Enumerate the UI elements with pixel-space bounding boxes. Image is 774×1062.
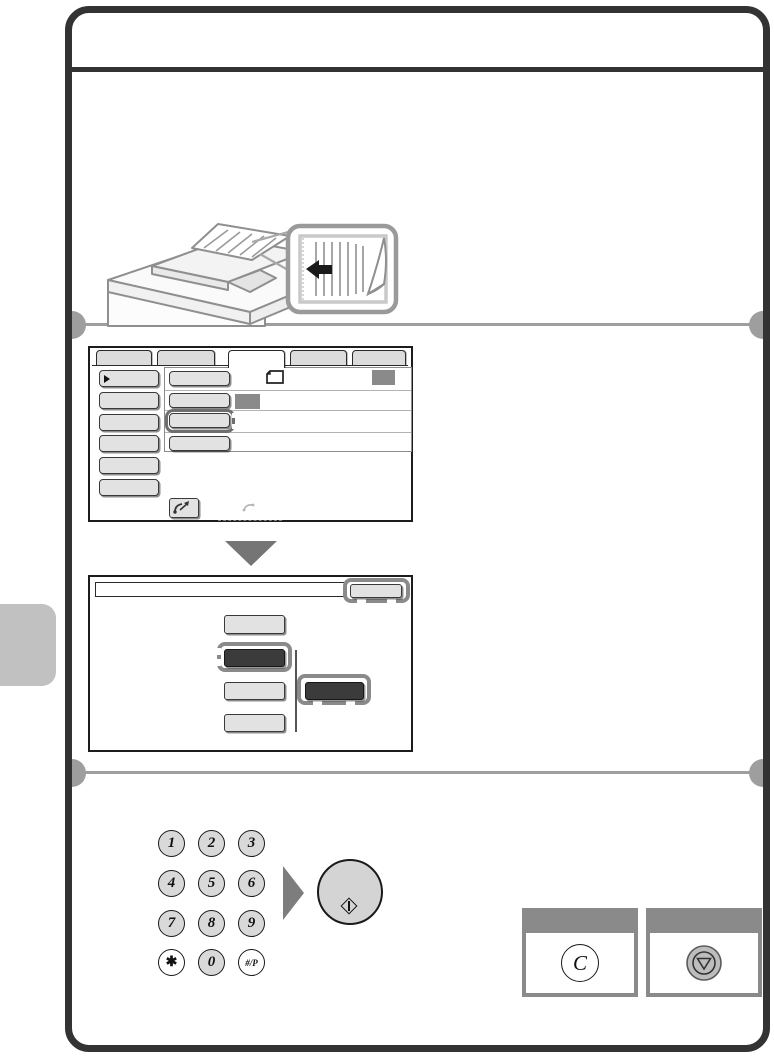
- ghost-text-underline: [218, 520, 282, 521]
- manual-page: 1 2 3 4 5 6 7 8 9 ✱ 0 #/P C: [0, 0, 774, 1062]
- ok-button[interactable]: [350, 584, 402, 598]
- key-label: 4: [168, 875, 176, 892]
- key-label: 6: [248, 875, 256, 892]
- value-badge-2: [235, 394, 260, 409]
- mfp-drawing: [100, 208, 420, 328]
- option-button-4[interactable]: [224, 714, 285, 732]
- setting-button-3-highlighted[interactable]: [169, 413, 230, 428]
- setting-button-2[interactable]: [169, 393, 230, 408]
- page-header: [72, 13, 763, 67]
- key-5[interactable]: 5: [198, 870, 225, 897]
- setting-button-4[interactable]: [169, 436, 230, 451]
- key-2[interactable]: 2: [198, 830, 225, 857]
- callout-box: [288, 226, 396, 312]
- menu-button-6[interactable]: [99, 479, 159, 496]
- key-1[interactable]: 1: [158, 830, 185, 857]
- handset-faint-icon: [242, 502, 256, 513]
- value-badge-1: [372, 370, 395, 385]
- linked-dark-button[interactable]: [305, 682, 364, 700]
- menu-button-1[interactable]: [99, 370, 159, 387]
- key-label: ✱: [166, 954, 178, 971]
- setting-button-1[interactable]: [169, 371, 230, 386]
- tab-2[interactable]: [157, 350, 215, 366]
- dog-ear-page-icon: [264, 369, 287, 385]
- header-divider: [72, 67, 763, 72]
- key-label: 7: [168, 915, 176, 932]
- key-6[interactable]: 6: [238, 870, 265, 897]
- tab-3-selected[interactable]: [228, 350, 285, 368]
- key-label: 2: [208, 835, 216, 852]
- key-3[interactable]: 3: [238, 830, 265, 857]
- touch-screen-1: [88, 346, 413, 522]
- handset-arrow-icon: [171, 499, 197, 515]
- start-button[interactable]: [317, 859, 383, 925]
- stop-button[interactable]: [685, 944, 723, 982]
- start-diamond-bar: [348, 901, 350, 911]
- tab-4[interactable]: [290, 350, 347, 366]
- key-label: 9: [248, 915, 256, 932]
- key-0[interactable]: 0: [198, 949, 225, 976]
- option-button-2-selected[interactable]: [224, 649, 285, 667]
- menu-button-4[interactable]: [99, 435, 159, 452]
- tab-5[interactable]: [352, 350, 406, 366]
- key-4[interactable]: 4: [158, 870, 185, 897]
- key-label: 3: [248, 835, 256, 852]
- tab-1[interactable]: [96, 350, 152, 366]
- clear-button[interactable]: C: [561, 944, 599, 982]
- key-label: #/P: [245, 958, 258, 968]
- finger-highlight-ok: [343, 578, 410, 603]
- clear-glyph: C: [573, 951, 587, 976]
- row-separator: [165, 390, 411, 391]
- key-pound-p[interactable]: #/P: [238, 949, 265, 976]
- clear-panel-header: [526, 912, 634, 933]
- then-press-arrow-icon: [283, 866, 304, 920]
- key-7[interactable]: 7: [158, 910, 185, 937]
- key-label: 5: [208, 875, 216, 892]
- stop-key-panel: [646, 908, 762, 997]
- mfp-illustration: [100, 208, 420, 328]
- next-step-down-arrow-icon: [225, 541, 277, 566]
- menu-button-2[interactable]: [99, 392, 159, 409]
- chapter-side-tab: [0, 604, 56, 686]
- key-9[interactable]: 9: [238, 910, 265, 937]
- clear-key-panel: C: [522, 908, 638, 997]
- key-label: 0: [208, 954, 216, 971]
- pointer-arrow-icon: [104, 375, 110, 383]
- stop-panel-header: [650, 912, 758, 933]
- touch-screen-2: [88, 575, 413, 752]
- option-button-3[interactable]: [224, 682, 285, 700]
- key-8[interactable]: 8: [198, 910, 225, 937]
- speaker-button[interactable]: [169, 498, 199, 518]
- key-label: 1: [168, 835, 176, 852]
- key-label: 8: [208, 915, 216, 932]
- key-star[interactable]: ✱: [158, 949, 185, 976]
- step-divider-2: [74, 771, 761, 774]
- menu-button-3[interactable]: [99, 414, 159, 431]
- option-button-1[interactable]: [224, 615, 285, 634]
- menu-button-5[interactable]: [99, 457, 159, 474]
